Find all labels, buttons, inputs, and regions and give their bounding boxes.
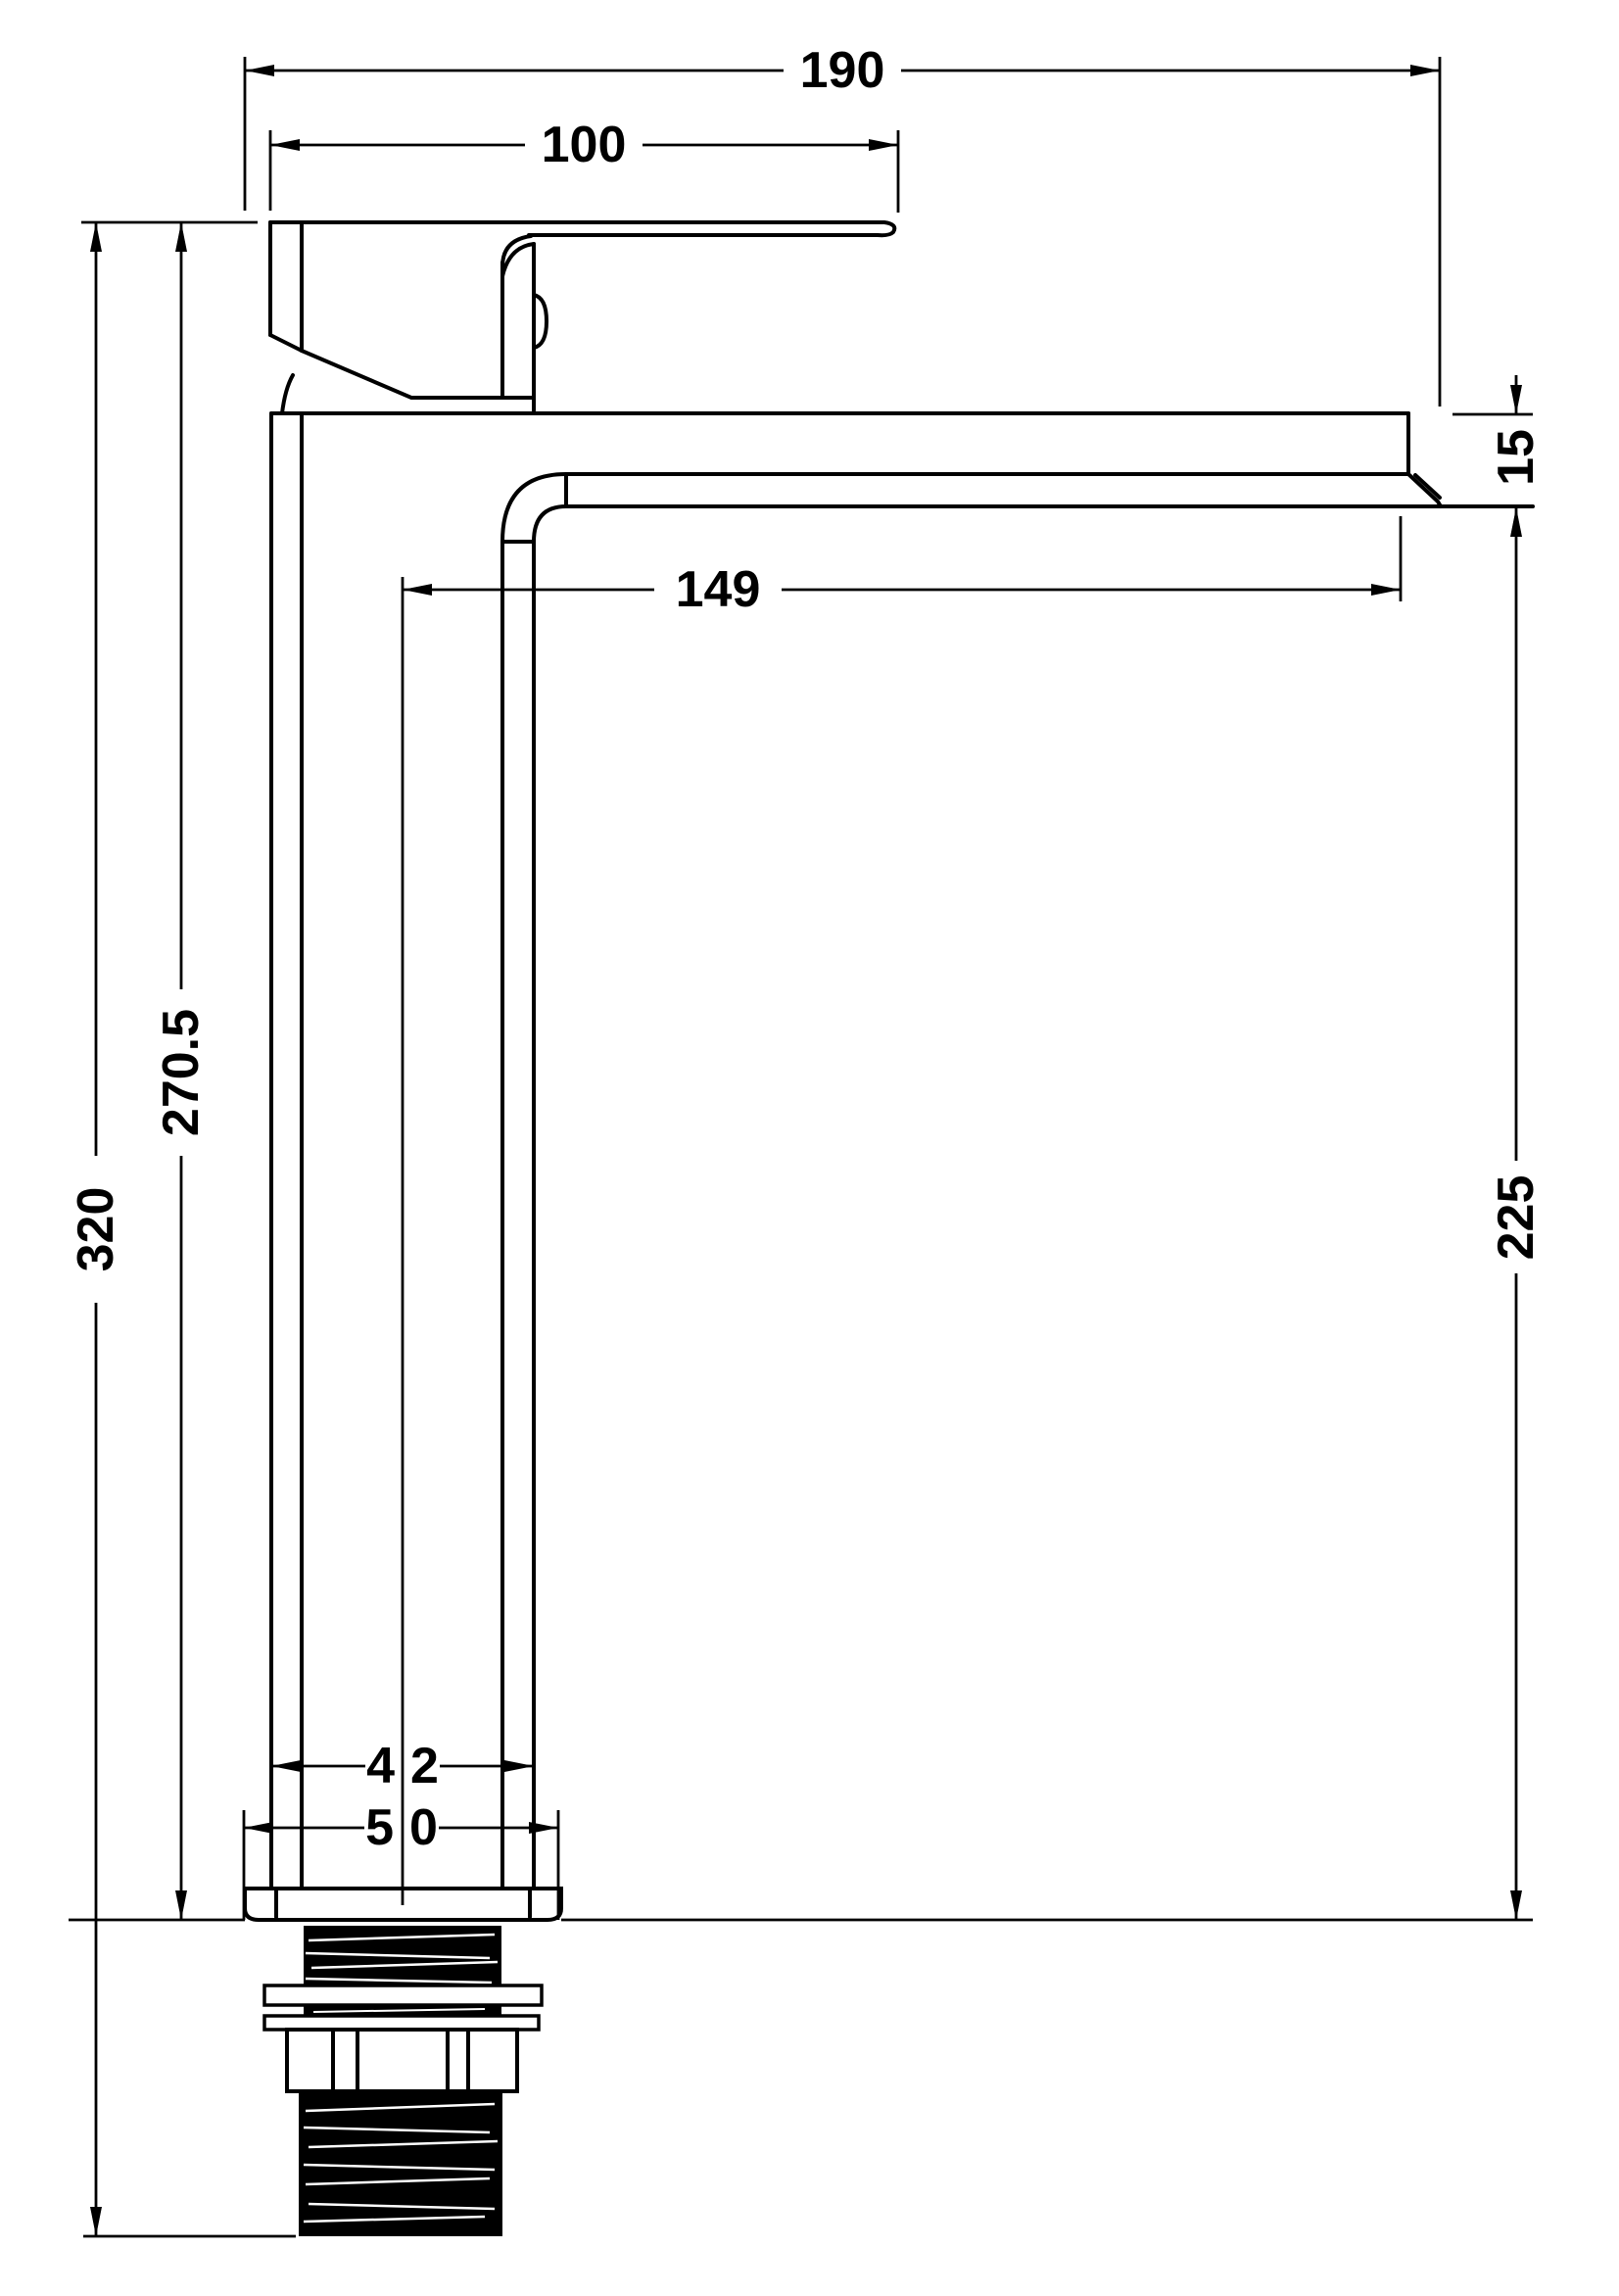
dim-label-overall-projection: 190 xyxy=(800,42,885,99)
washer-upper xyxy=(264,1985,542,2005)
dim-label-body-width: 42 xyxy=(366,1738,454,1794)
arrow-270p5-top xyxy=(175,222,187,252)
arrow-100-left xyxy=(270,139,300,151)
dimension-labels: 190 100 149 42 50 15 225 270.5 320 xyxy=(68,42,1545,1856)
arrow-190-right xyxy=(1410,65,1440,76)
tap-dimension-drawing: 190 100 149 42 50 15 225 270.5 320 xyxy=(0,0,1619,2291)
arrow-50-left xyxy=(244,1822,273,1834)
arrow-100-right xyxy=(869,139,898,151)
arrow-50-right xyxy=(529,1822,558,1834)
washer-lower xyxy=(264,2016,539,2030)
tailpiece-assembly xyxy=(264,1926,542,2236)
spout-bend-inner xyxy=(534,506,566,542)
arrow-190-left xyxy=(245,65,274,76)
handle-left-chamfer xyxy=(270,335,302,351)
spout-tip-bevel-outer xyxy=(1408,474,1441,506)
arrow-320-top xyxy=(90,222,102,252)
dim-label-base-to-handle-height: 270.5 xyxy=(153,1009,210,1136)
arrow-320-bottom xyxy=(90,2207,102,2236)
body-dome-arc xyxy=(282,375,293,413)
arrow-42-left xyxy=(271,1760,301,1772)
arrow-15-top xyxy=(1510,385,1522,414)
drawing-page: 190 100 149 42 50 15 225 270.5 320 xyxy=(0,0,1619,2291)
arrow-149-right xyxy=(1371,584,1401,596)
arrow-149-left xyxy=(403,584,432,596)
arrow-225-bottom xyxy=(1510,1890,1522,1920)
backnut xyxy=(287,2030,517,2091)
dim-label-spout-reach: 149 xyxy=(676,561,761,618)
dim-label-spout-thickness: 15 xyxy=(1488,429,1545,486)
handle-skirt xyxy=(302,351,502,398)
dim-label-base-width: 50 xyxy=(365,1799,453,1856)
arrow-225-top xyxy=(1510,507,1522,537)
arrow-42-right xyxy=(504,1760,534,1772)
arrow-270p5-bottom xyxy=(175,1890,187,1920)
faucet-outline xyxy=(245,222,1533,1920)
dim-label-total-height: 320 xyxy=(68,1187,124,1272)
dim-label-spout-to-base-height: 225 xyxy=(1488,1175,1545,1261)
dim-label-handle-length: 100 xyxy=(542,117,627,173)
